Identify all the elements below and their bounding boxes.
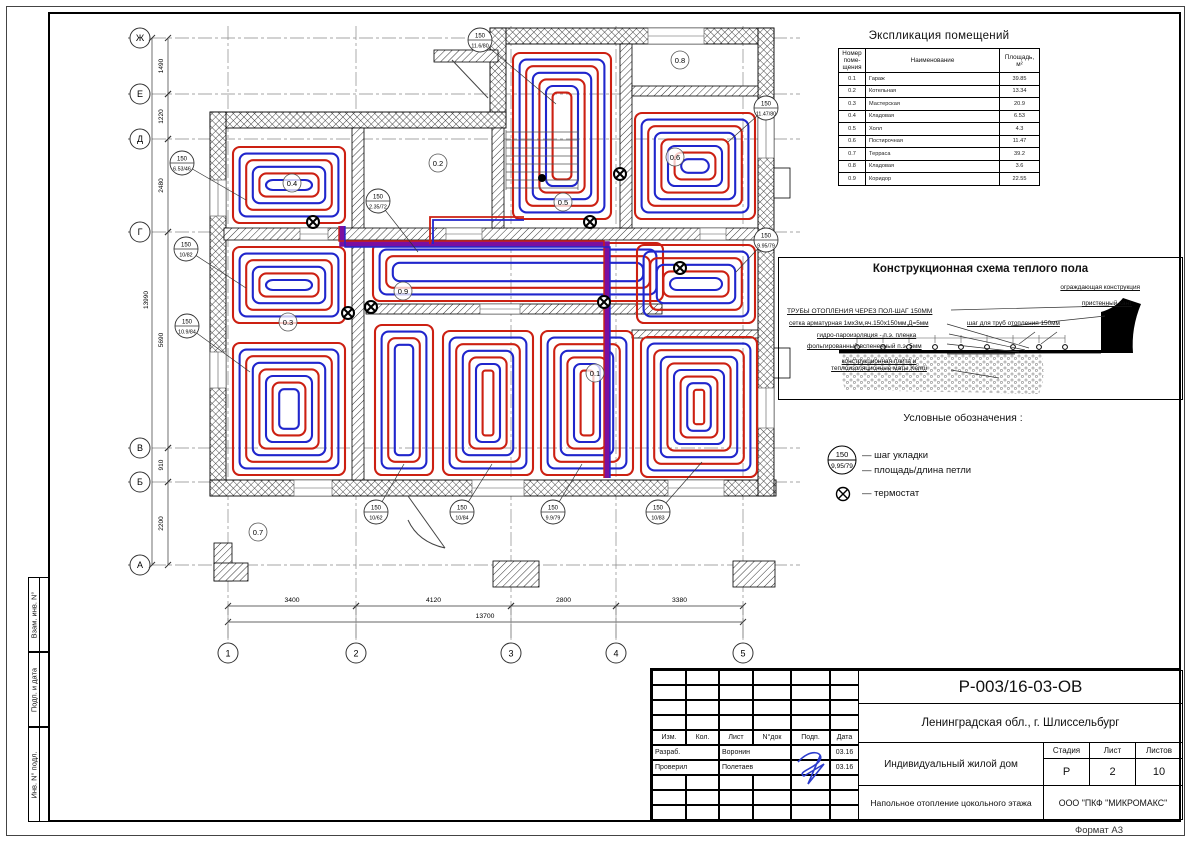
revision-cell: Разраб. [652,745,719,760]
svg-text:4: 4 [613,648,618,658]
revision-cell [719,805,753,820]
svg-text:9,95/79: 9,95/79 [831,463,853,470]
revision-cell [652,790,686,805]
svg-text:Г: Г [138,227,143,237]
svg-text:11.47/80: 11.47/80 [756,112,776,118]
project-location: Ленинградская обл., г. Шлиссельбург [858,703,1183,743]
svg-text:13700: 13700 [476,613,495,620]
revision-cell [791,715,830,730]
revision-cell [652,685,686,700]
scheme-title: Конструкционная схема теплого пола [779,263,1182,275]
svg-text:13990: 13990 [143,291,150,309]
revision-cell [686,685,719,700]
revision-cell [753,685,791,700]
revision-cell [652,715,686,730]
sheet-value: 2 [1089,758,1136,786]
schedule-row: 0.7Терраса39.2 [839,148,1040,161]
svg-text:1490: 1490 [158,58,165,73]
revision-cell [791,790,830,805]
schedule-row: 0.9Коридор22.55 [839,173,1040,186]
schedule-row: 0.3Мастерская20.9 [839,98,1040,111]
revision-cell [753,670,791,685]
floor-slab-line [839,350,1101,353]
svg-text:1220: 1220 [158,109,165,124]
schedule-header-area: Площадь, м² [1000,49,1040,73]
revision-cell [791,805,830,820]
legend-step-label: — шаг укладки [862,450,928,461]
schedule-row: 0.1Гараж39.85 [839,73,1040,86]
schedule-row: 0.2Котельная13.34 [839,85,1040,98]
svg-text:11.6/80: 11.6/80 [471,44,488,50]
svg-text:Б: Б [137,477,143,487]
revision-cell [652,700,686,715]
schedule-row: 0.6Постирочная11.47 [839,135,1040,148]
revision-cell [686,715,719,730]
legend: Условные обозначения : 150 9,95/79 — шаг… [798,412,1088,512]
scheme-mesh-label: сетка арматурная 1мх3м,яч.150х150мм,Д=5м… [789,320,929,327]
scheme-pipes-label: ТРУБЫ ОТОПЛЕНИЯ ЧЕРЕЗ ПОЛ-ШАГ 150ММ [787,308,932,315]
svg-text:5: 5 [740,648,745,658]
company-name: ООО "ПКФ "МИКРОМАКС" [1043,785,1183,820]
revision-cell [652,775,686,790]
project-object: Индивидуальный жилой дом [858,742,1044,786]
step-symbol-icon: 150 9,95/79 [828,446,856,474]
schedule-title: Экспликация помещений [838,30,1040,42]
svg-text:10/83: 10/83 [651,516,664,522]
revision-cell [830,685,859,700]
svg-text:0.1: 0.1 [590,369,600,378]
svg-text:150: 150 [548,506,559,512]
revision-cell [719,790,753,805]
stage-value: Р [1043,758,1090,786]
svg-text:1: 1 [225,648,230,658]
revision-cell [719,670,753,685]
svg-text:6.53/46: 6.53/46 [173,167,191,173]
svg-text:9.9/79: 9.9/79 [546,516,561,522]
svg-text:150: 150 [371,506,382,512]
revision-cell: Проверил [652,760,719,775]
schedule-row: 0.8Кладовая3.6 [839,160,1040,173]
doc-number: Р-003/16-03-ОВ [858,670,1183,704]
revision-cell [753,715,791,730]
svg-text:150: 150 [475,34,486,40]
drawing-sheet: Взам. инв. N° Подп. и дата Инв. N° подл.… [0,0,1191,842]
sheet-label: Лист [1089,742,1136,759]
schedule-header-num: Номер поме- щения [839,49,866,73]
scheme-step-label: шаг для труб отопления 150мм [967,320,1060,327]
revision-header-cell: N°док [753,730,791,745]
sheet-title: Напольное отопление цокольного этажа [858,785,1044,820]
revision-cell [830,805,859,820]
revision-cell [753,790,791,805]
revision-cell: Полетаев [719,760,791,775]
svg-text:150: 150 [373,195,384,201]
svg-text:2800: 2800 [556,597,571,604]
svg-text:Е: Е [137,89,143,99]
svg-text:910: 910 [158,459,165,470]
revision-cell [686,775,719,790]
revision-cell [753,700,791,715]
revision-cell [830,670,859,685]
legend-thermostat-label: — термостат [862,488,919,499]
revision-header-cell: Кол. [686,730,719,745]
stage-label: Стадия [1043,742,1090,759]
svg-text:2200: 2200 [158,516,165,531]
revision-header-cell: Лист [719,730,753,745]
revision-cell [686,670,719,685]
revision-cell [830,700,859,715]
construction-scheme: Конструкционная схема теплого пола [778,257,1183,400]
svg-text:10/82: 10/82 [179,253,192,259]
scheme-plate-label: конструкционная плита и теплоизоляционны… [809,358,949,372]
svg-text:150: 150 [177,157,188,163]
format-label: Формат А3 [1075,825,1123,836]
svg-text:5690: 5690 [158,332,165,347]
schedule-table: Номер поме- щения Наименование Площадь, … [838,48,1040,186]
revision-cell [830,790,859,805]
svg-text:Д: Д [137,134,143,144]
svg-text:0.5: 0.5 [558,198,568,207]
svg-text:0.9: 0.9 [398,287,408,296]
scheme-skirt-label: пристенный кант [1082,300,1132,307]
svg-text:3380: 3380 [672,597,687,604]
schedule-row: 0.5Холл4.3 [839,123,1040,136]
svg-text:150: 150 [182,320,193,326]
title-block: Изм.Кол.ЛистN°докПодп.ДатаРазраб.Воронин… [650,668,1181,822]
revision-cell [719,700,753,715]
sheets-label: Листов [1135,742,1183,759]
revision-cell [652,670,686,685]
legend-loop-label: — площадь/длина петли [862,465,971,476]
signature [790,742,850,788]
schedule-row: 0.4Кладовая6.53 [839,110,1040,123]
sheets-value: 10 [1135,758,1183,786]
svg-text:3400: 3400 [284,597,299,604]
revision-cell [719,715,753,730]
revision-header-cell: Изм. [652,730,686,745]
svg-text:0.6: 0.6 [670,153,680,162]
svg-text:А: А [137,560,143,570]
svg-text:Ж: Ж [136,33,145,43]
revision-cell [686,700,719,715]
scheme-enclosure-label: ограждающая конструкция [1060,284,1140,291]
thermostat-icon [837,488,850,501]
legend-title: Условные обозначения : [838,412,1088,424]
svg-text:150: 150 [836,450,849,459]
schedule-header-name: Наименование [866,49,1000,73]
svg-text:0.4: 0.4 [287,179,297,188]
svg-text:150: 150 [653,506,664,512]
svg-text:2.35/72: 2.35/72 [369,205,387,211]
svg-text:150: 150 [761,102,772,108]
revision-cell [719,775,753,790]
svg-text:2480: 2480 [158,178,165,193]
revision-cell [791,700,830,715]
svg-text:0.8: 0.8 [675,56,685,65]
svg-text:150: 150 [761,234,772,240]
svg-text:4120: 4120 [426,597,441,604]
revision-cell [686,790,719,805]
revision-cell [830,715,859,730]
revision-cell [791,670,830,685]
svg-text:10/84: 10/84 [455,516,468,522]
svg-text:10/62: 10/62 [369,516,382,522]
revision-cell [791,685,830,700]
revision-cell [753,775,791,790]
svg-text:0.7: 0.7 [253,528,263,537]
revision-cell [719,685,753,700]
svg-text:3: 3 [508,648,513,658]
svg-text:0.3: 0.3 [283,318,293,327]
revision-cell [753,805,791,820]
svg-text:9.95/79: 9.95/79 [757,244,775,250]
svg-text:В: В [137,443,143,453]
revision-cell [652,805,686,820]
svg-text:10.9/84: 10.9/84 [178,330,196,336]
revision-cell: Воронин [719,745,791,760]
svg-text:150: 150 [457,506,468,512]
svg-text:2: 2 [353,648,358,658]
room-schedule: Экспликация помещений Номер поме- щения … [838,30,1040,186]
scheme-hydro-label: гидро-пароизоляция - п.э. пленка [817,332,916,339]
svg-text:150: 150 [181,243,192,249]
svg-text:0.2: 0.2 [433,159,443,168]
revision-cell [686,805,719,820]
scheme-foil-label: фольгированный вспененный п.э. 5мм [807,343,922,350]
